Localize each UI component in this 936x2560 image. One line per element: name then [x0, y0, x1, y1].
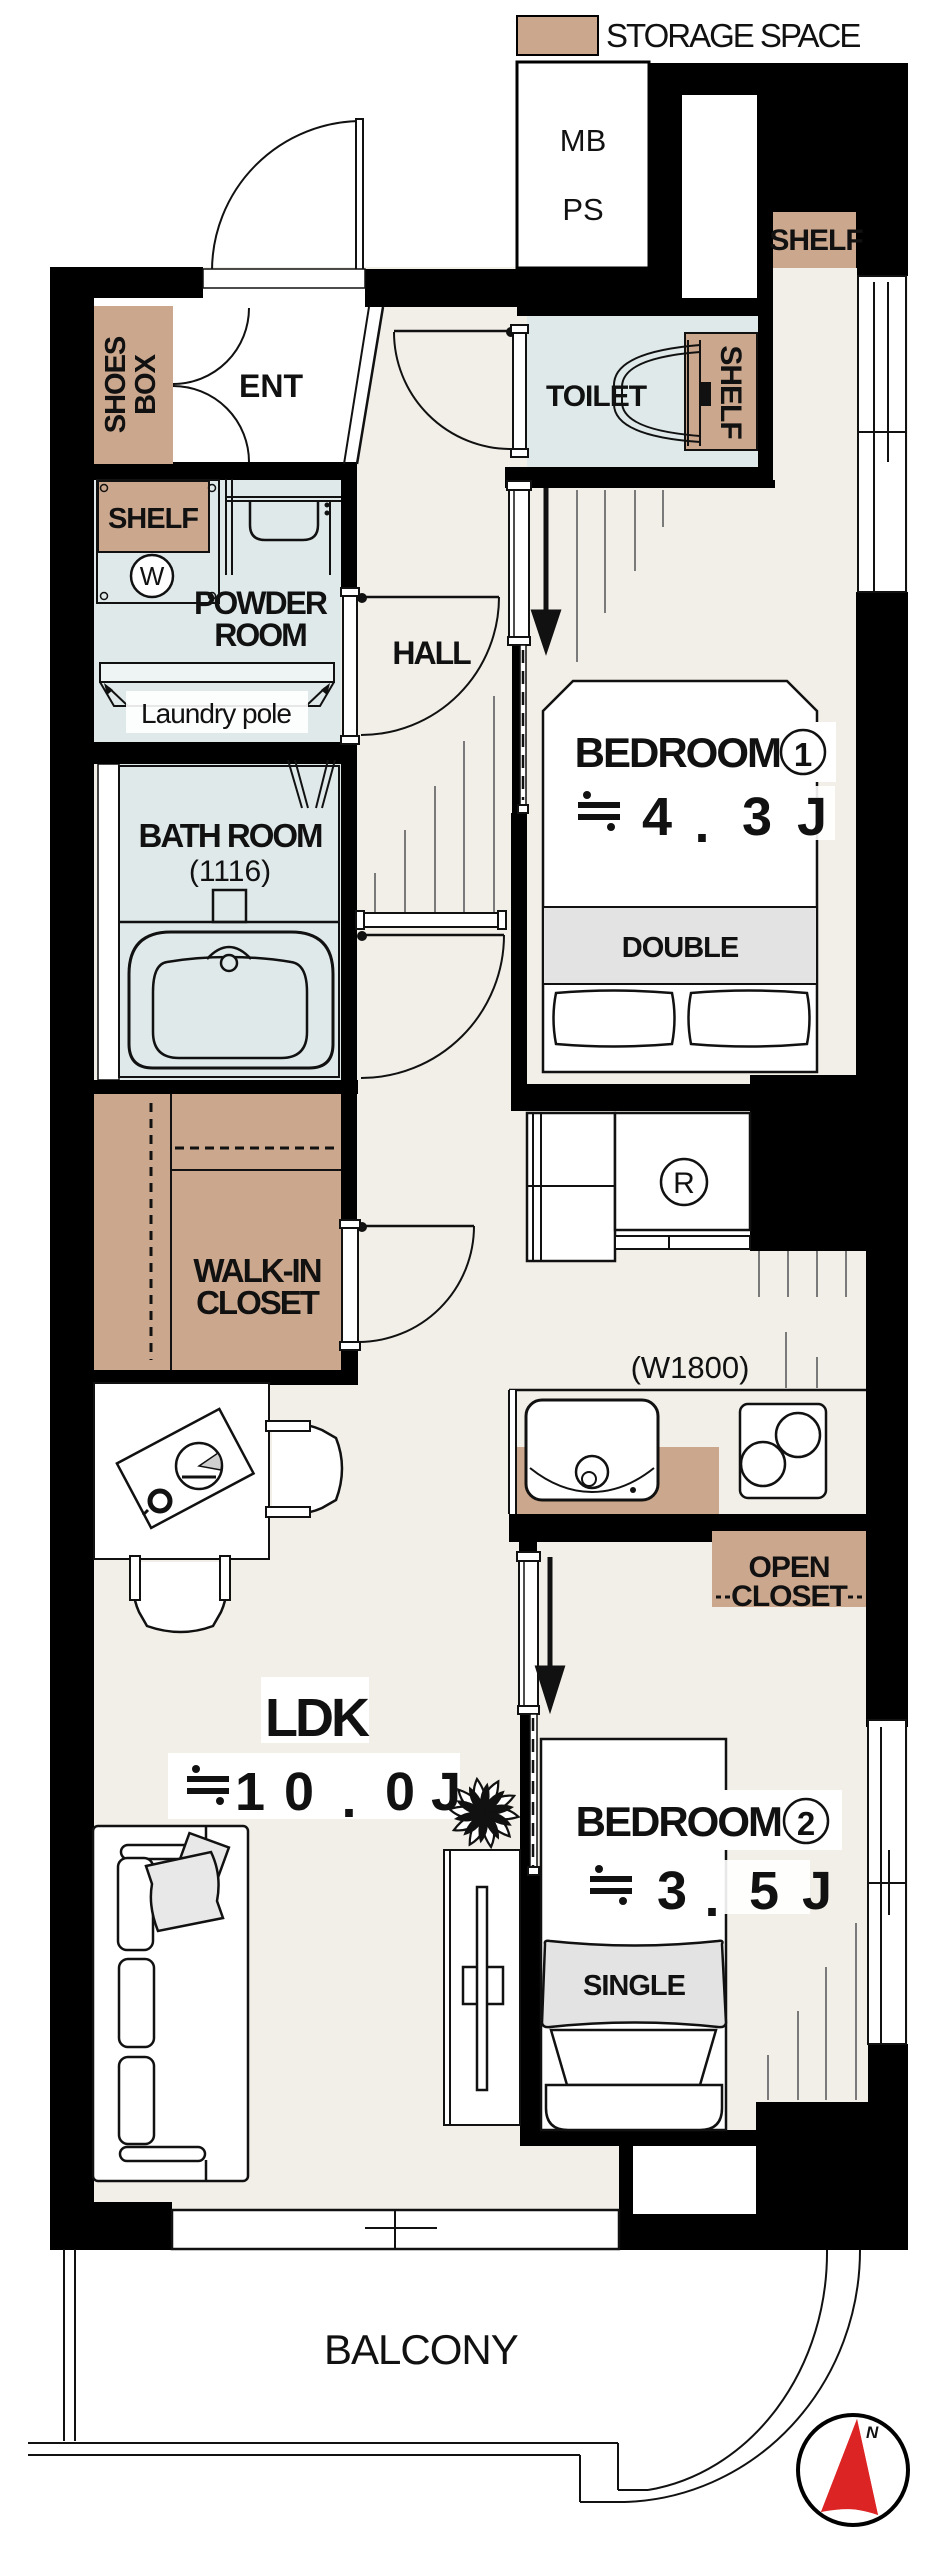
svg-text:BEDROOM: BEDROOM [575, 729, 780, 776]
svg-text:ENT: ENT [239, 368, 303, 404]
svg-text:ROOM: ROOM [214, 617, 306, 653]
svg-text:HALL: HALL [392, 635, 471, 671]
svg-text:0: 0 [385, 1762, 415, 1822]
svg-text:SINGLE: SINGLE [583, 1970, 686, 2002]
svg-text:2: 2 [797, 1805, 815, 1842]
svg-text:1: 1 [235, 1762, 265, 1822]
svg-text:.: . [704, 1868, 719, 1928]
svg-text:5: 5 [749, 1861, 779, 1921]
svg-text:TOILET: TOILET [546, 380, 647, 413]
svg-text:PS: PS [562, 192, 603, 227]
svg-text:3: 3 [657, 1861, 687, 1921]
svg-text:CLOSET: CLOSET [196, 1284, 320, 1321]
svg-text:1: 1 [794, 736, 812, 773]
svg-text:BALCONY: BALCONY [324, 2326, 519, 2373]
svg-text:(W1800): (W1800) [631, 1350, 750, 1385]
svg-text:W: W [140, 561, 165, 591]
svg-text:STORAGE SPACE: STORAGE SPACE [606, 17, 860, 54]
svg-text:LDK: LDK [265, 1688, 370, 1748]
svg-text:J: J [797, 787, 827, 847]
svg-text:(1116): (1116) [189, 855, 271, 888]
svg-text:BEDROOM: BEDROOM [576, 1798, 781, 1845]
svg-text:SHELF: SHELF [108, 503, 198, 535]
svg-text:CLOSET: CLOSET [731, 1580, 847, 1613]
svg-text:3: 3 [742, 787, 772, 847]
svg-text:J: J [802, 1861, 832, 1921]
svg-text:0: 0 [284, 1762, 314, 1822]
svg-text:N: N [866, 2423, 879, 2442]
svg-text:POWDER: POWDER [194, 585, 328, 621]
svg-text:SHELF: SHELF [714, 345, 747, 439]
svg-text:Laundry pole: Laundry pole [141, 698, 291, 729]
svg-text:R: R [673, 1167, 695, 1200]
svg-text:DOUBLE: DOUBLE [622, 932, 739, 964]
svg-text:4: 4 [642, 787, 672, 847]
svg-text:BATH ROOM: BATH ROOM [138, 817, 322, 854]
svg-text:.: . [694, 794, 709, 854]
svg-text:.: . [341, 1769, 356, 1829]
svg-text:MB: MB [560, 123, 607, 158]
svg-text:SHELF: SHELF [769, 224, 863, 257]
